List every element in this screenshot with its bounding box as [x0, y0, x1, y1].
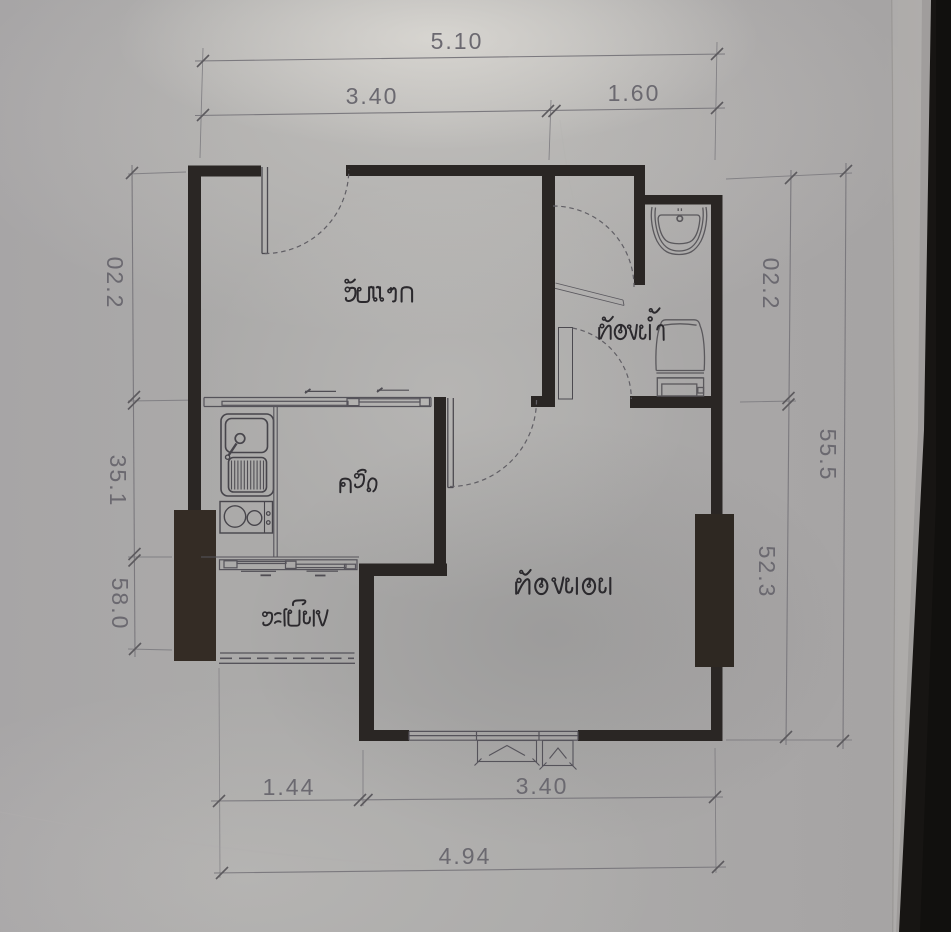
svg-text:02.2: 02.2	[758, 258, 784, 311]
svg-text:3.40: 3.40	[346, 83, 399, 109]
svg-text:52.3: 52.3	[754, 546, 780, 599]
svg-text:35.1: 35.1	[105, 455, 131, 508]
svg-text:02.2: 02.2	[102, 257, 128, 310]
svg-text:4.94: 4.94	[439, 843, 492, 869]
svg-text:1.44: 1.44	[263, 774, 316, 800]
svg-text:55.5: 55.5	[815, 429, 841, 482]
svg-text:5.10: 5.10	[431, 28, 484, 54]
svg-text:3.40: 3.40	[516, 773, 569, 799]
svg-text:1.60: 1.60	[608, 80, 661, 106]
svg-text:58.0: 58.0	[107, 578, 133, 631]
